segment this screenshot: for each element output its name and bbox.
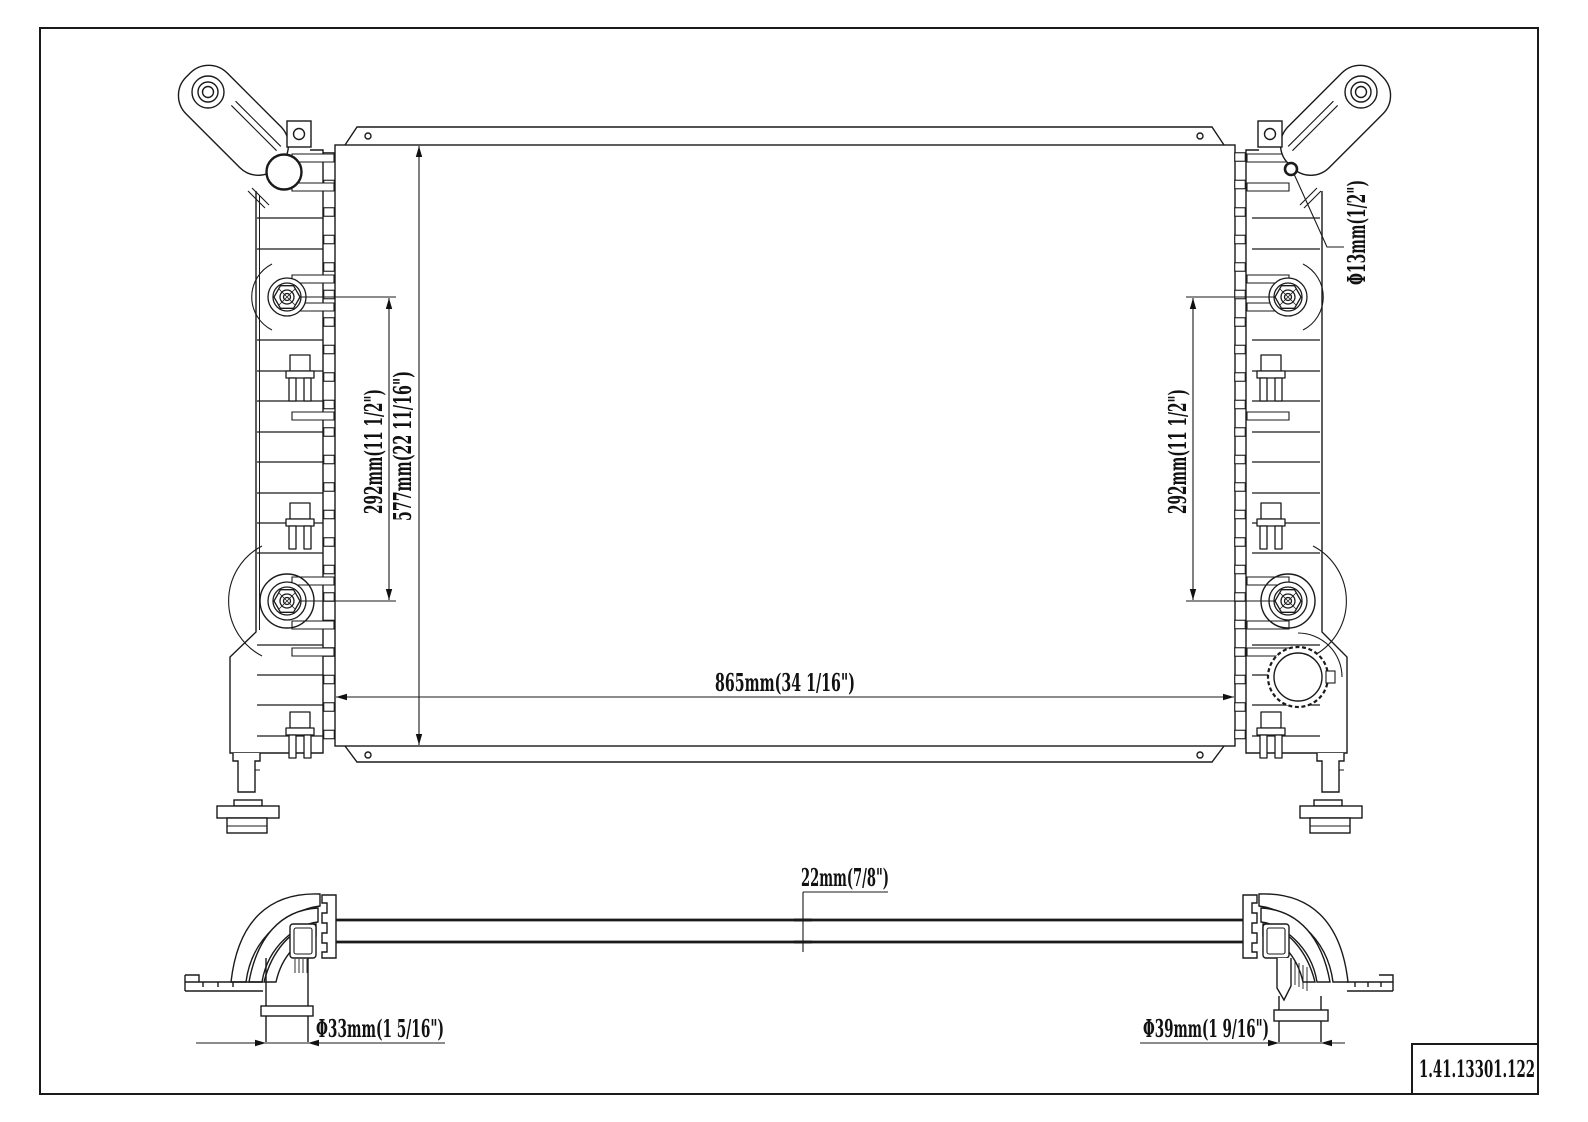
dim-label-core-width: 865mm(34 1/16")	[715, 668, 855, 697]
part-number: 1.41.13301.122	[1419, 1056, 1535, 1083]
dim-label-core-height: 577mm(22 11/16")	[388, 371, 417, 521]
radiator-technical-drawing: 292mm(11 1/2") 577mm(22 11/16") 865mm(34…	[0, 0, 1588, 1122]
left-pipe-bead	[261, 1006, 313, 1016]
left-filler-opening	[267, 155, 302, 190]
left-tank-serration	[323, 152, 335, 746]
left-bracket-boss	[192, 76, 224, 108]
dim-label-right-fitting-spacing: 292mm(11 1/2")	[1163, 389, 1192, 514]
left-tab-hole	[294, 129, 305, 140]
dim-label-core-thickness: 22mm(7/8")	[801, 863, 889, 892]
dim-label-left-fitting-spacing: 292mm(11 1/2")	[359, 389, 388, 514]
right-tab-hole	[1265, 129, 1276, 140]
dim-label-right-pipe: Φ39mm(1 9/16")	[1143, 1014, 1269, 1043]
right-tank-serration	[1234, 152, 1246, 746]
dim-label-bracket-hole: Φ13mm(1/2")	[1342, 180, 1371, 285]
right-bracket-boss	[1345, 76, 1377, 108]
bracket-mount-hole-13mm	[1285, 163, 1297, 175]
right-pipe-bead	[1274, 1010, 1328, 1021]
dim-label-left-pipe: Φ33mm(1 5/16")	[316, 1014, 444, 1043]
